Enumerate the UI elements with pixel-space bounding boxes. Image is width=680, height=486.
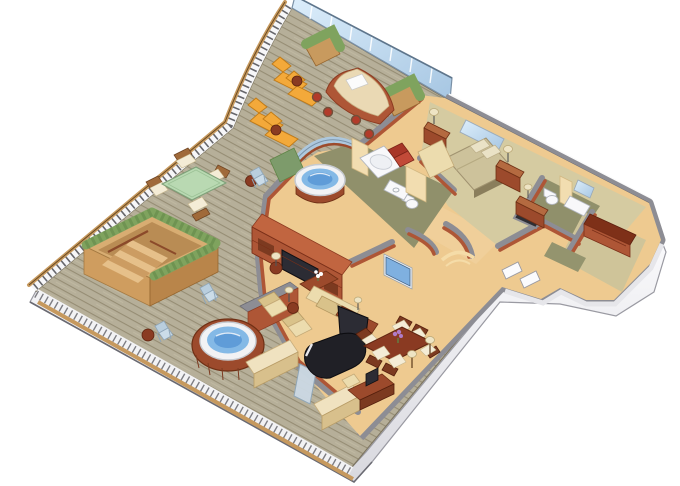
bar-stool <box>352 116 361 125</box>
cocktail-table <box>142 329 154 341</box>
console-lamp <box>354 297 362 303</box>
bar-stool <box>313 93 322 102</box>
cocktail-table <box>271 125 281 135</box>
floor-plan-svg <box>0 0 680 486</box>
suite-floor-plan-illustration <box>0 0 680 486</box>
bedside-lamp <box>430 109 439 116</box>
round-side-table <box>288 303 299 314</box>
bedside-lamp <box>504 146 513 153</box>
bar-stool <box>324 108 333 117</box>
floor-lamp <box>285 287 293 293</box>
side-table-north <box>270 253 282 275</box>
bar-stool <box>365 130 374 139</box>
dresser-lamp <box>524 184 532 190</box>
table-lamp <box>272 253 281 260</box>
cocktail-table <box>292 76 302 86</box>
